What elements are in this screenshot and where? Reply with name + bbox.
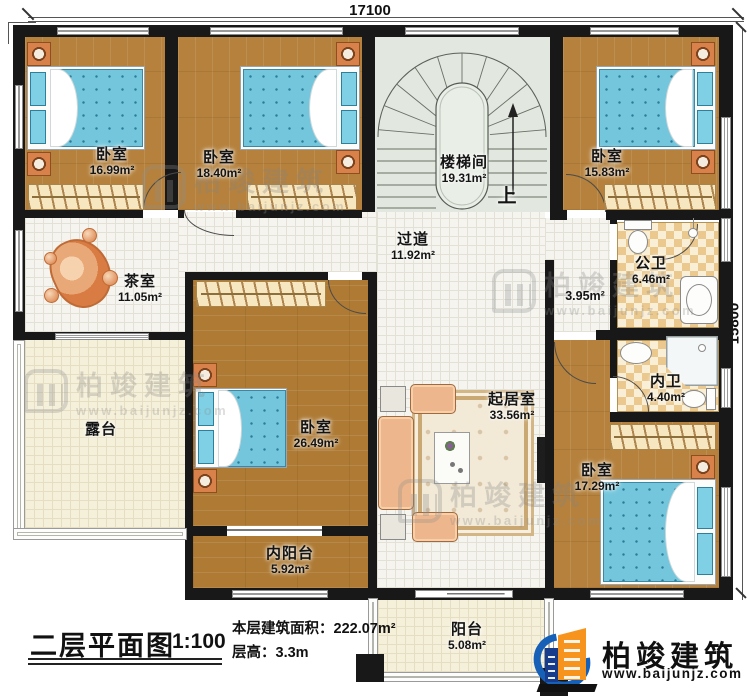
table-decor <box>450 462 455 467</box>
dimension-tick <box>732 8 745 21</box>
pillow <box>30 72 46 106</box>
window <box>721 117 731 209</box>
sliding-partition <box>227 529 322 531</box>
shower-drain <box>698 344 706 352</box>
window <box>590 27 679 35</box>
extension-line <box>8 22 9 44</box>
nightstand <box>27 152 51 176</box>
wall <box>596 330 610 340</box>
pillow <box>697 533 713 575</box>
pillow <box>697 487 713 529</box>
room-label-public-bath: 公卫 6.46m² <box>606 256 696 286</box>
sofa <box>378 416 414 510</box>
window <box>15 85 23 149</box>
staircase <box>375 37 550 212</box>
balcony-railing <box>368 672 554 682</box>
wardrobe <box>28 184 144 210</box>
pillow <box>198 430 214 464</box>
pull-cord-knob <box>688 228 698 238</box>
wall <box>236 210 362 218</box>
window <box>55 333 149 340</box>
room-label-terrace: 露台 <box>70 422 132 439</box>
dimension-tick <box>22 8 35 21</box>
wall <box>610 412 719 422</box>
window <box>721 487 731 577</box>
wall <box>193 526 227 536</box>
wall <box>185 272 193 600</box>
pillow <box>341 110 357 144</box>
window <box>721 218 731 262</box>
side-table <box>380 514 406 540</box>
toilet <box>628 230 648 254</box>
title-underline <box>28 663 222 665</box>
sink <box>620 342 652 364</box>
nightstand <box>691 150 715 174</box>
side-table <box>380 386 406 412</box>
armchair <box>412 512 458 542</box>
brand-logo-building2-icon <box>545 648 558 682</box>
extension-line <box>8 22 36 23</box>
window <box>57 27 149 35</box>
pillow <box>198 392 214 426</box>
nightstand <box>27 42 51 66</box>
wall <box>25 210 143 218</box>
wall <box>610 218 617 224</box>
window <box>210 27 343 35</box>
room-label-nook: 3.95m² <box>552 289 618 303</box>
room-label-bedroom1: 卧室 16.99m² <box>67 147 157 177</box>
dimension-tick <box>735 587 746 598</box>
nightstand <box>193 363 217 387</box>
nook-floor <box>545 218 610 332</box>
window <box>590 590 684 598</box>
wall <box>545 330 554 340</box>
pillow <box>697 110 713 144</box>
dimension-line-top-2 <box>28 21 744 22</box>
room-label-tea-room: 茶室 11.05m² <box>94 274 186 304</box>
room-label-stairwell: 楼梯间 19.31m² <box>414 155 514 185</box>
pillow <box>697 72 713 106</box>
room-label-inner-bath: 内卫 4.40m² <box>620 374 712 404</box>
sliding-door <box>415 590 513 598</box>
room-label-hallway: 过道 11.92m² <box>368 232 458 262</box>
wall <box>610 340 617 378</box>
tea-stool <box>44 252 57 265</box>
wall <box>362 37 375 212</box>
flower-vase <box>444 440 456 452</box>
wardrobe <box>610 424 716 450</box>
tea-stool <box>82 228 97 243</box>
room-label-inner-balcony: 内阳台 5.92m² <box>244 546 336 576</box>
nightstand <box>691 42 715 66</box>
wall <box>368 272 377 588</box>
table-decor <box>458 468 463 473</box>
wall <box>550 37 563 220</box>
nightstand <box>691 455 715 479</box>
balcony-post <box>356 654 384 682</box>
floor-height-note: 层高：3.3m <box>232 641 309 662</box>
terrace-railing <box>13 528 187 540</box>
brand-logo-base <box>537 684 598 692</box>
terrace-railing <box>13 340 25 540</box>
plan-scale: 1:100 <box>172 630 226 654</box>
brand-url: www.baijunjz.com <box>602 666 743 681</box>
brand-logo-building-icon <box>558 628 586 680</box>
toilet-tank <box>624 220 652 230</box>
nightstand <box>193 469 217 493</box>
stairs-up-label: 上 <box>494 186 520 207</box>
floor-area-note: 本层建筑面积：222.07m² <box>232 617 396 638</box>
tea-stool <box>44 288 59 303</box>
wardrobe <box>247 184 357 210</box>
sink <box>686 284 712 316</box>
floor-plan: 17100 15800 <box>0 0 750 696</box>
window <box>405 27 519 35</box>
pillow <box>341 72 357 106</box>
nightstand <box>336 150 360 174</box>
nightstand <box>336 42 360 66</box>
room-label-bedroom4: 卧室 26.49m² <box>270 420 362 450</box>
wardrobe <box>604 184 716 210</box>
wardrobe <box>196 281 326 307</box>
dimension-width: 17100 <box>330 2 410 19</box>
tv <box>537 437 545 483</box>
window <box>232 590 328 598</box>
window <box>721 368 731 408</box>
room-label-balcony: 阳台 5.08m² <box>420 622 514 652</box>
room-label-bedroom5: 卧室 17.29m² <box>550 463 644 493</box>
window <box>15 230 23 312</box>
armchair <box>410 384 456 414</box>
dimension-tick <box>735 21 746 32</box>
wall <box>322 526 368 536</box>
pillow <box>30 110 46 144</box>
room-label-bedroom2: 卧室 18.40m² <box>174 150 264 180</box>
room-label-living-room: 起居室 33.56m² <box>464 392 560 422</box>
room-label-bedroom3: 卧室 15.83m² <box>561 149 653 179</box>
wall <box>606 210 719 220</box>
title-underline <box>28 658 222 660</box>
wall <box>193 272 328 280</box>
